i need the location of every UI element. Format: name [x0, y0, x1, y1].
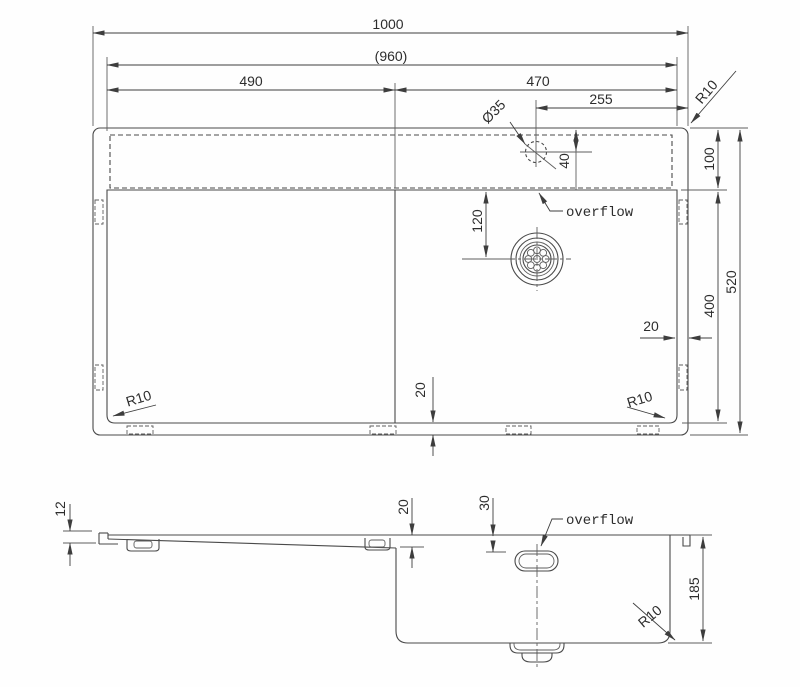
dim-drainboard-width: 490 [239, 73, 263, 89]
dim-bowl-depth: 185 [686, 577, 702, 601]
mounting-clips [95, 200, 687, 434]
technical-drawing-canvas: 1000 (960) 490 470 255 Ø35 40 100 400 52… [0, 0, 800, 687]
overflow-label-section: overflow [566, 513, 634, 529]
radius-note-top-right: R10 [692, 77, 721, 107]
section-clips [127, 538, 390, 551]
radius-note-bottom-right: R10 [625, 388, 654, 411]
dim-rim-side-gap: 20 [643, 318, 659, 334]
extension-lines-plan [93, 26, 748, 435]
sink-outer-rim [93, 128, 688, 435]
dim-bowl-front-depth: 400 [701, 294, 717, 318]
overflow-label-plan: overflow [566, 205, 634, 221]
dim-drainboard-edge-height: 12 [52, 501, 68, 517]
dim-rim-bottom-gap: 20 [412, 382, 428, 398]
dim-inner-width: (960) [375, 48, 408, 64]
drain-strainer [503, 227, 571, 291]
radius-note-bottom-left: R10 [124, 387, 153, 410]
dim-drain-inset: 120 [469, 209, 485, 233]
sink-dimension-drawing: 1000 (960) 490 470 255 Ø35 40 100 400 52… [0, 0, 800, 687]
dim-drainboard-drop: 20 [395, 499, 411, 515]
dim-overall-width: 1000 [372, 16, 403, 32]
sink-inner-recess [107, 190, 677, 423]
section-view: 12 20 30 185 R10 overflow [52, 495, 712, 668]
dim-deck-band-height: 100 [701, 147, 717, 171]
dim-tap-hole-diameter: Ø35 [478, 96, 508, 126]
plan-view: 1000 (960) 490 470 255 Ø35 40 100 400 52… [93, 16, 748, 456]
overflow-channel-outline [110, 135, 672, 188]
deck-profile [99, 533, 690, 548]
dim-overall-depth: 520 [723, 270, 739, 294]
dim-tap-hole-offset: 255 [589, 91, 613, 107]
leader-lines-plan [113, 71, 736, 418]
dim-overflow-inset: 30 [476, 495, 492, 511]
dim-bowl-width: 470 [526, 73, 550, 89]
radius-note-section: R10 [635, 602, 665, 631]
dim-tap-hole-inset: 40 [556, 153, 572, 169]
overflow-opening [515, 551, 558, 571]
